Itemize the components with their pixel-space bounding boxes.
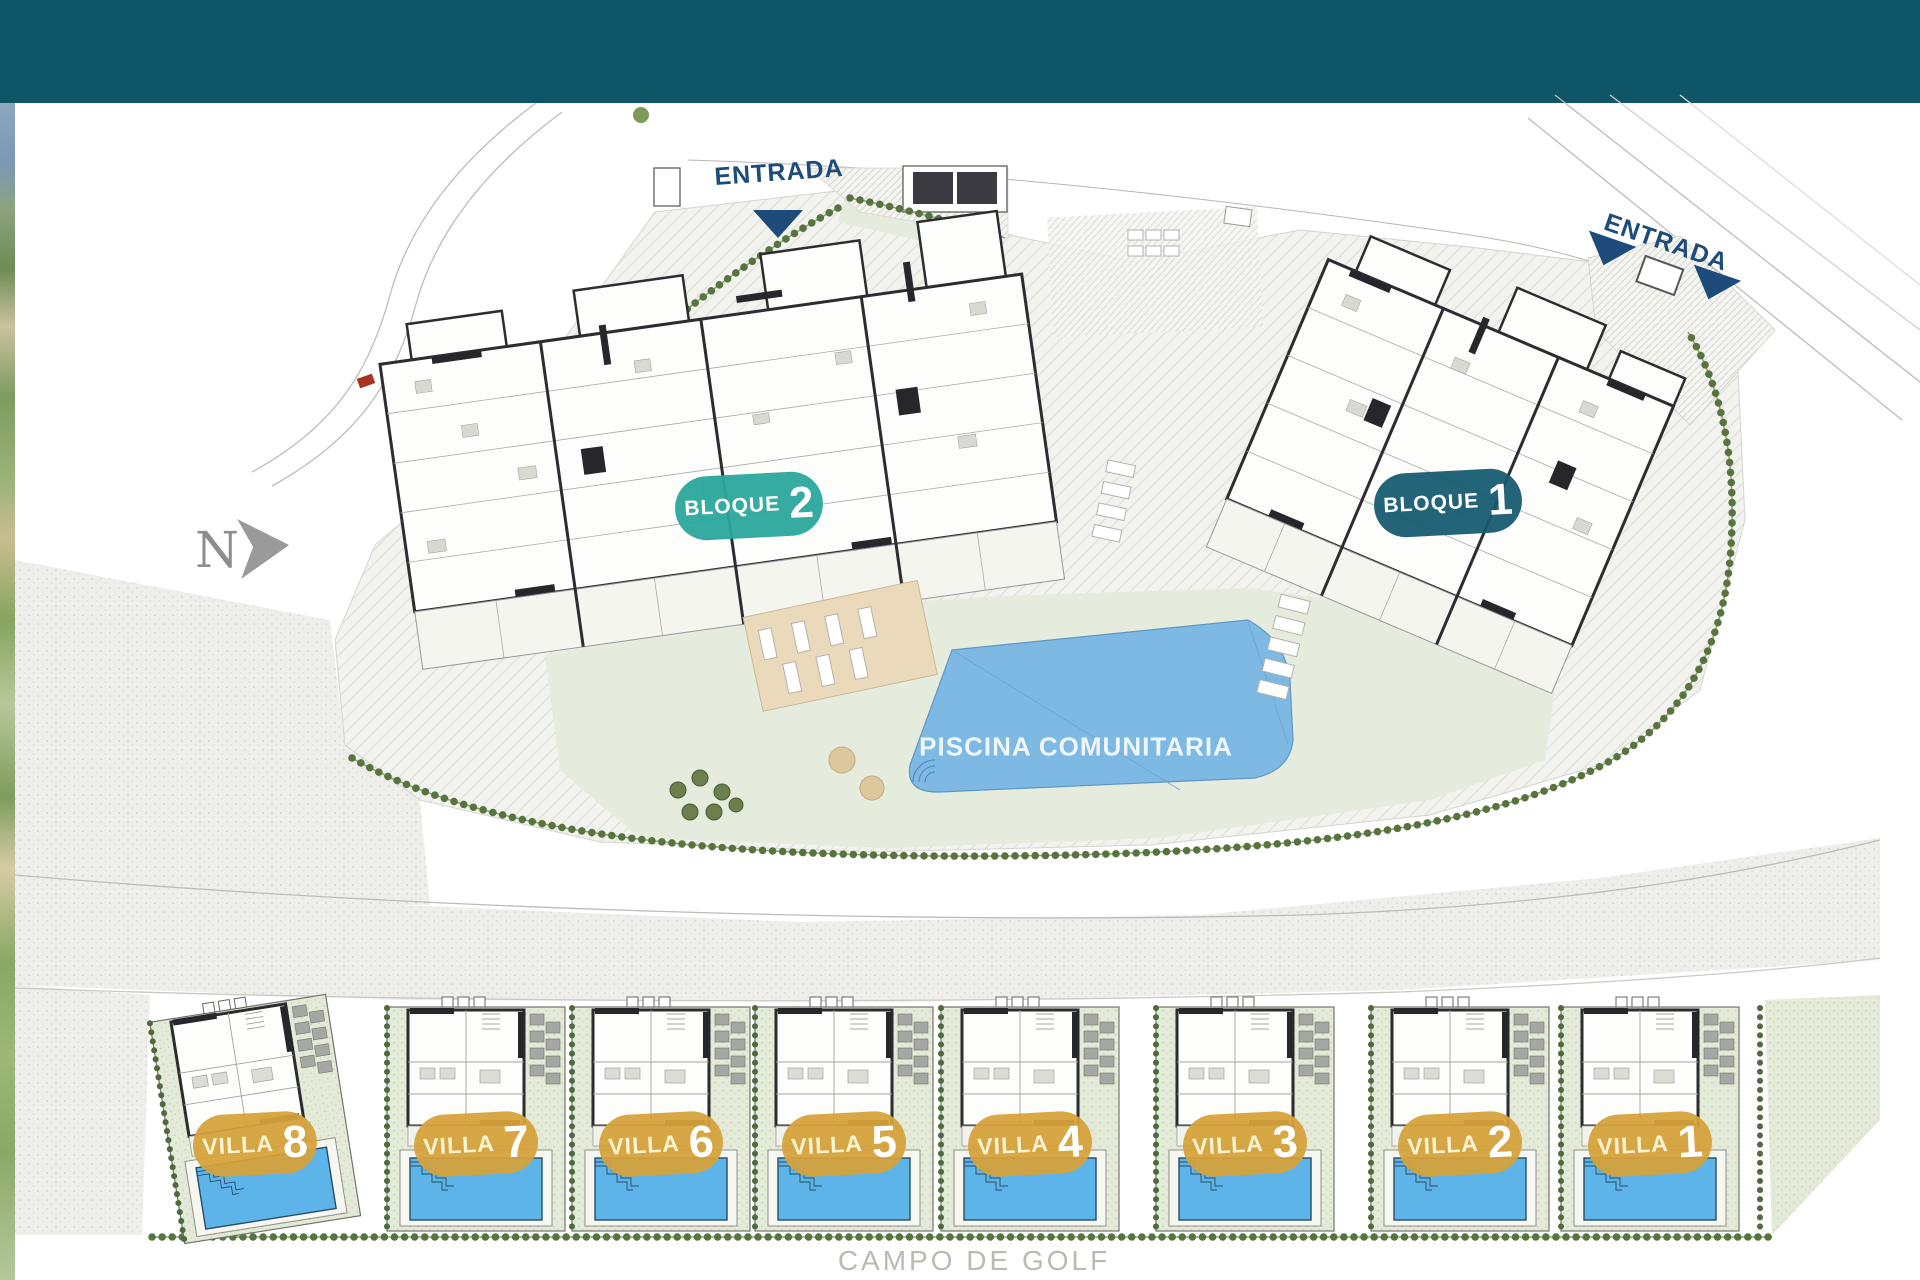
block-badge-number: 2 [788,478,815,529]
villa-8-badge[interactable]: VILLA 8 [191,1110,318,1178]
block-2-badge[interactable]: BLOQUE 2 [673,470,824,542]
villa-2-badge[interactable]: VILLA 2 [1396,1110,1523,1178]
villa-badge-label: VILLA [977,1130,1050,1161]
villa-badge-label: VILLA [1407,1130,1480,1161]
siteplan-page: ENTRADA ENTRADA N BLOQUE 2 BLOQUE 1 PISC… [0,0,1920,1280]
villa-badge-number: 1 [1676,1115,1704,1168]
villa-badge-number: 4 [1056,1115,1084,1168]
villa-plots [148,985,1760,1244]
villa-badge-label: VILLA [1192,1130,1265,1161]
north-indicator: N [195,515,295,585]
villa-badge-number: 6 [687,1115,715,1168]
villa-6-badge[interactable]: VILLA 6 [597,1110,724,1178]
villa-badge-number: 7 [502,1115,530,1168]
site-plan-drawing [0,0,1920,1280]
villa-badge-number: 3 [1271,1115,1299,1168]
villa-badge-number: 2 [1486,1115,1514,1168]
villa-badge-number: 8 [281,1115,309,1168]
block-badge-label: BLOQUE [1383,489,1480,518]
villa-badge-label: VILLA [791,1130,864,1161]
block-1-badge[interactable]: BLOQUE 1 [1372,467,1523,539]
villa-badge-label: VILLA [202,1130,275,1161]
villa-3-badge[interactable]: VILLA 3 [1181,1110,1308,1178]
villa-4-badge[interactable]: VILLA 4 [966,1110,1093,1178]
villa-badge-number: 5 [870,1115,898,1168]
villa-badge-label: VILLA [423,1130,496,1161]
block-badge-label: BLOQUE [684,492,781,521]
villa-7-badge[interactable]: VILLA 7 [412,1110,539,1178]
block-badge-number: 1 [1487,475,1514,526]
entrance-top-arrow-icon [753,210,803,238]
villa-1-badge[interactable]: VILLA 1 [1586,1110,1713,1178]
villa-badge-label: VILLA [1597,1130,1670,1161]
villa-badge-label: VILLA [608,1130,681,1161]
communal-pool-label: PISCINA COMUNITARIA [919,732,1233,763]
north-arrow-icon [233,515,295,585]
villa-5-badge[interactable]: VILLA 5 [780,1110,907,1178]
golf-course-label: CAMPO DE GOLF [838,1245,1110,1277]
